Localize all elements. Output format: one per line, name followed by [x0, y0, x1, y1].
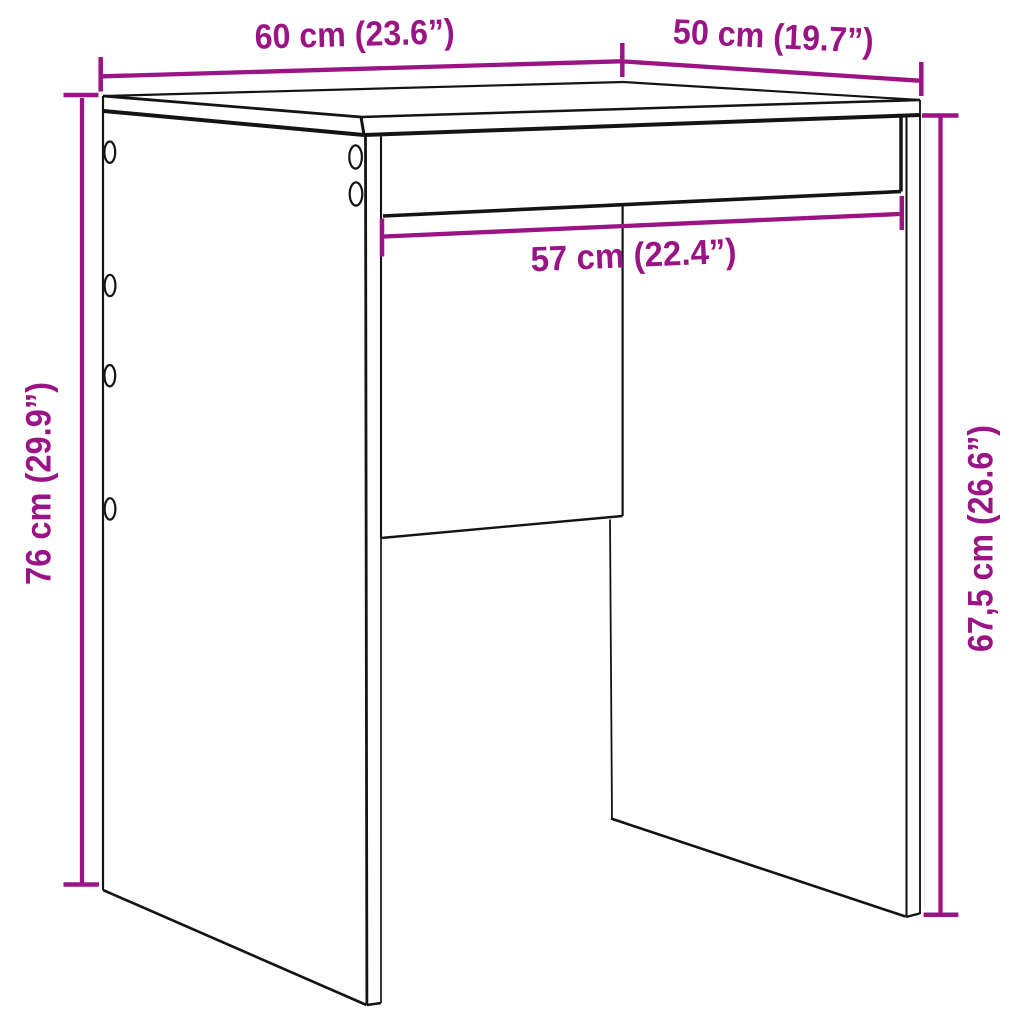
svg-text:67,5 cm (26.6”): 67,5 cm (26.6”): [962, 425, 1001, 652]
svg-text:57 cm (22.4”): 57 cm (22.4”): [530, 232, 737, 280]
svg-text:50 cm (19.7”): 50 cm (19.7”): [672, 12, 875, 61]
svg-text:76 cm (29.9”): 76 cm (29.9”): [20, 382, 59, 585]
svg-text:60 cm (23.6”): 60 cm (23.6”): [254, 12, 455, 57]
